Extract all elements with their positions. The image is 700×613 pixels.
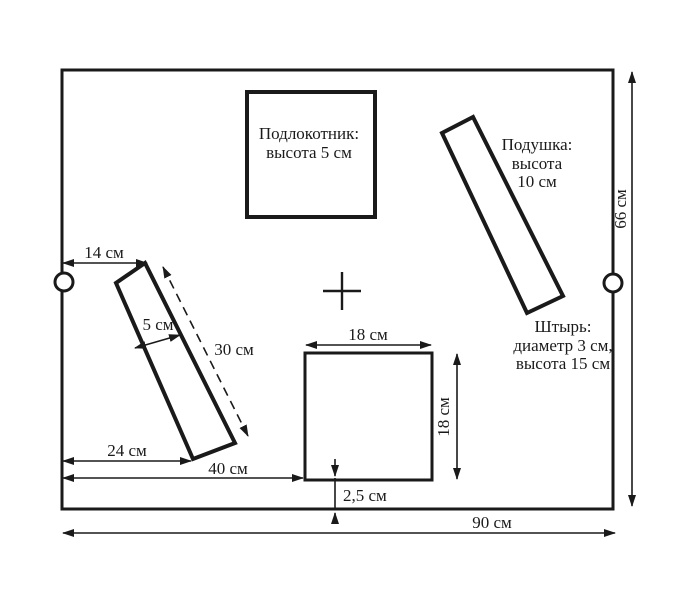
dim-label-66: 66 см	[611, 189, 630, 229]
dim-label-5: 5 см	[142, 315, 173, 334]
dim-label-18-right: 18 см	[434, 397, 453, 437]
armrest-label-line1: Подлокотник:	[259, 124, 359, 143]
diagram-page: 14 см 5 см 30 см 24 см 40 см 18 см 18 см…	[0, 0, 700, 613]
dim-label-18-top: 18 см	[348, 325, 388, 344]
dim-label-2_5: 2,5 см	[343, 486, 387, 505]
pin-label-line1: Штырь:	[535, 317, 592, 336]
pin-label-line3: высота 15 см	[516, 354, 610, 373]
right-pin-circle	[604, 274, 622, 292]
armrest-label-line2: высота 5 см	[266, 143, 352, 162]
dim-label-24: 24 см	[107, 441, 147, 460]
armrest-label: Подлокотник: высота 5 см	[259, 124, 359, 162]
left-pin-circle	[55, 273, 73, 291]
diagram-canvas: 14 см 5 см 30 см 24 см 40 см 18 см 18 см…	[0, 0, 700, 613]
pillow-label-line2: высота	[512, 154, 563, 173]
pillow-label-line1: Подушка:	[502, 135, 573, 154]
dim-label-90: 90 см	[472, 513, 512, 532]
dim-label-40: 40 см	[208, 459, 248, 478]
center-square	[305, 353, 432, 480]
pin-label-line2: диаметр 3 см,	[513, 336, 612, 355]
dim-label-14: 14 см	[84, 243, 124, 262]
pillow-label-line3: 10 см	[517, 172, 557, 191]
dim-label-30: 30 см	[214, 340, 254, 359]
